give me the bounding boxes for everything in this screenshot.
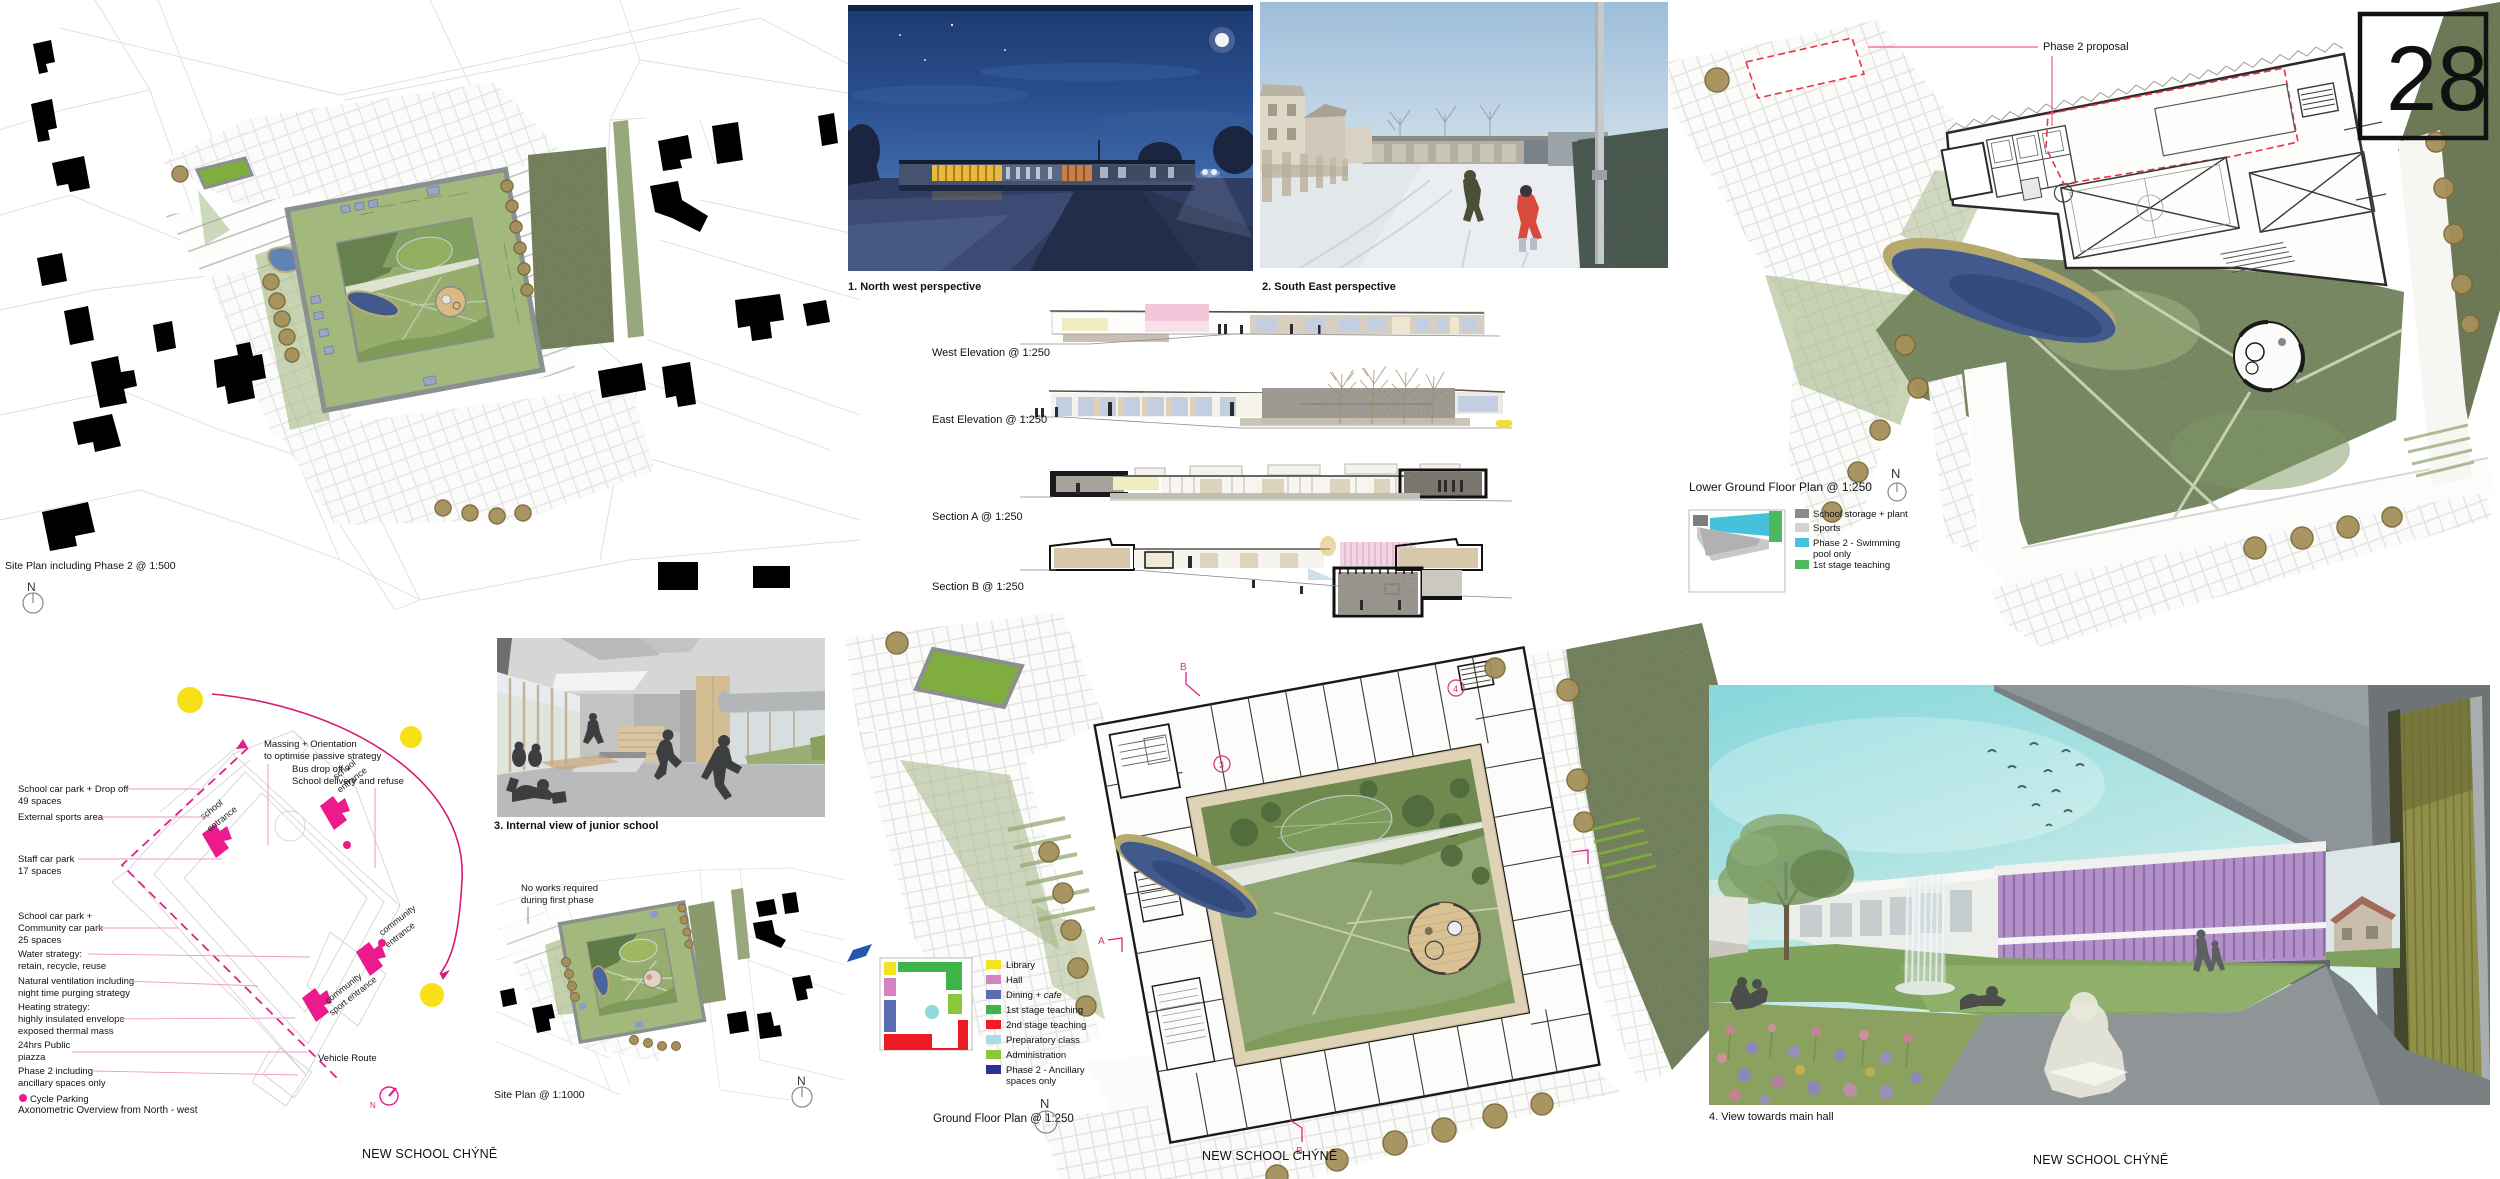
svg-text:during first phase: during first phase (521, 895, 594, 906)
svg-text:17 spaces: 17 spaces (18, 866, 62, 877)
svg-text:exposed thermal mass: exposed thermal mass (18, 1026, 114, 1037)
svg-text:Axonometric Overview from Nort: Axonometric Overview from North - west (18, 1105, 198, 1116)
svg-text:Water strategy:: Water strategy: (18, 949, 82, 960)
svg-text:N: N (797, 1074, 806, 1088)
svg-text:24hrs Public: 24hrs Public (18, 1040, 71, 1051)
svg-text:School car park + Drop off: School car park + Drop off (18, 784, 129, 795)
svg-text:NEW SCHOOL CHÝNĚ: NEW SCHOOL CHÝNĚ (1202, 1148, 1337, 1163)
svg-text:Dining + cafe: Dining + cafe (1006, 990, 1062, 1001)
svg-text:3. Internal view of junior sch: 3. Internal view of junior school (494, 820, 658, 832)
svg-text:1st stage teaching: 1st stage teaching (1813, 560, 1890, 571)
svg-text:Phase 2 proposal: Phase 2 proposal (2043, 41, 2129, 53)
svg-text:Hall: Hall (1006, 975, 1022, 986)
svg-text:School delivery and refuse: School delivery and refuse (292, 776, 404, 787)
svg-text:4. View towards main hall: 4. View towards main hall (1709, 1111, 1834, 1123)
svg-text:Section B @ 1:250: Section B @ 1:250 (932, 581, 1024, 593)
svg-text:highly insulated envelope: highly insulated envelope (18, 1014, 125, 1025)
svg-text:Preparatory class: Preparatory class (1006, 1035, 1080, 1046)
svg-text:School storage + plant: School storage + plant (1813, 509, 1908, 520)
svg-text:A: A (1098, 936, 1105, 947)
svg-text:B: B (1180, 662, 1187, 673)
svg-text:2. South East perspective: 2. South East perspective (1262, 281, 1396, 293)
svg-text:Library: Library (1006, 960, 1035, 971)
svg-text:Vehicle Route: Vehicle Route (318, 1053, 377, 1064)
svg-text:3: 3 (1219, 760, 1224, 770)
svg-text:Bus drop off +: Bus drop off + (292, 764, 352, 775)
svg-text:Site Plan including Phase 2 @: Site Plan including Phase 2 @ 1:500 (5, 560, 176, 572)
svg-text:spaces only: spaces only (1006, 1076, 1056, 1087)
svg-text:ancillary spaces only: ancillary spaces only (18, 1078, 106, 1089)
svg-text:Section A @ 1:250: Section A @ 1:250 (932, 511, 1023, 523)
svg-text:N: N (1891, 466, 1900, 481)
svg-text:Lower Ground Floor Plan @ 1:25: Lower Ground Floor Plan @ 1:250 (1689, 480, 1872, 494)
svg-text:28: 28 (2386, 28, 2488, 130)
svg-text:4: 4 (1453, 684, 1458, 694)
svg-text:1. North west perspective: 1. North west perspective (848, 281, 981, 293)
svg-text:Cycle Parking: Cycle Parking (30, 1094, 89, 1105)
svg-text:Ground Floor Plan @ 1:250: Ground Floor Plan @ 1:250 (933, 1113, 1074, 1125)
svg-text:Community car park: Community car park (18, 923, 103, 934)
svg-text:No works required: No works required (521, 883, 598, 894)
svg-text:Heating strategy:: Heating strategy: (18, 1002, 90, 1013)
svg-text:Administration: Administration (1006, 1050, 1066, 1061)
svg-text:to optimise passive strategy: to optimise passive strategy (264, 751, 381, 762)
svg-text:Massing + Orientation: Massing + Orientation (264, 739, 357, 750)
svg-text:N: N (27, 580, 36, 594)
svg-text:East Elevation @ 1:250: East Elevation @ 1:250 (932, 414, 1047, 426)
svg-text:N: N (370, 1101, 376, 1110)
svg-text:West Elevation @ 1:250: West Elevation @ 1:250 (932, 347, 1050, 359)
svg-text:NEW SCHOOL CHÝNĚ: NEW SCHOOL CHÝNĚ (2033, 1152, 2168, 1167)
svg-text:2nd stage teaching: 2nd stage teaching (1006, 1020, 1086, 1031)
svg-text:Phase 2 including: Phase 2 including (18, 1066, 93, 1077)
svg-text:retain, recycle, reuse: retain, recycle, reuse (18, 961, 106, 972)
svg-text:External sports area: External sports area (18, 812, 104, 823)
svg-text:N: N (1040, 1096, 1049, 1111)
svg-text:Site Plan @ 1:1000: Site Plan @ 1:1000 (494, 1089, 585, 1101)
svg-text:Phase 2 - Swimming: Phase 2 - Swimming (1813, 538, 1900, 549)
svg-text:25 spaces: 25 spaces (18, 935, 62, 946)
svg-text:night time purging strategy: night time purging strategy (18, 988, 130, 999)
svg-text:Natural ventilation including: Natural ventilation including (18, 976, 134, 987)
svg-text:Staff car park: Staff car park (18, 854, 75, 865)
svg-text:pool only: pool only (1813, 549, 1851, 560)
svg-text:piazza: piazza (18, 1052, 46, 1063)
svg-text:Sports: Sports (1813, 523, 1841, 534)
svg-text:School car park +: School car park + (18, 911, 93, 922)
svg-text:1st stage teaching: 1st stage teaching (1006, 1005, 1083, 1016)
svg-text:Phase 2 - Ancillary: Phase 2 - Ancillary (1006, 1065, 1085, 1076)
svg-text:NEW SCHOOL CHÝNĚ: NEW SCHOOL CHÝNĚ (362, 1146, 497, 1161)
svg-text:49 spaces: 49 spaces (18, 796, 62, 807)
